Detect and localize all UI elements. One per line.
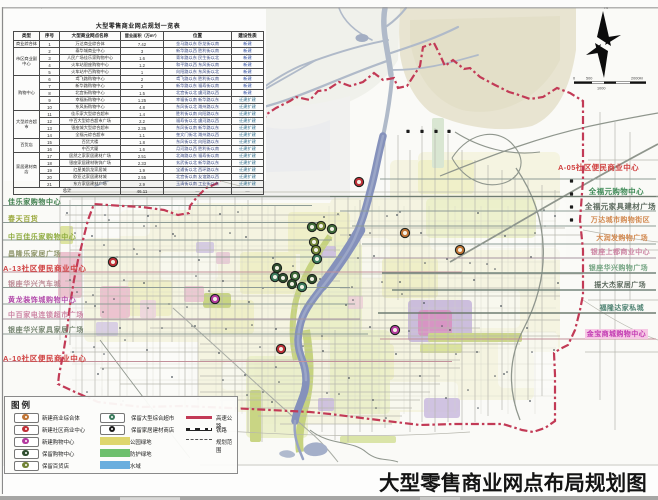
svg-text:500: 500 [586,77,592,81]
svg-text:2000M: 2000M [631,77,643,81]
svg-text:0: 0 [573,77,575,81]
svg-text:1000: 1000 [597,87,605,91]
